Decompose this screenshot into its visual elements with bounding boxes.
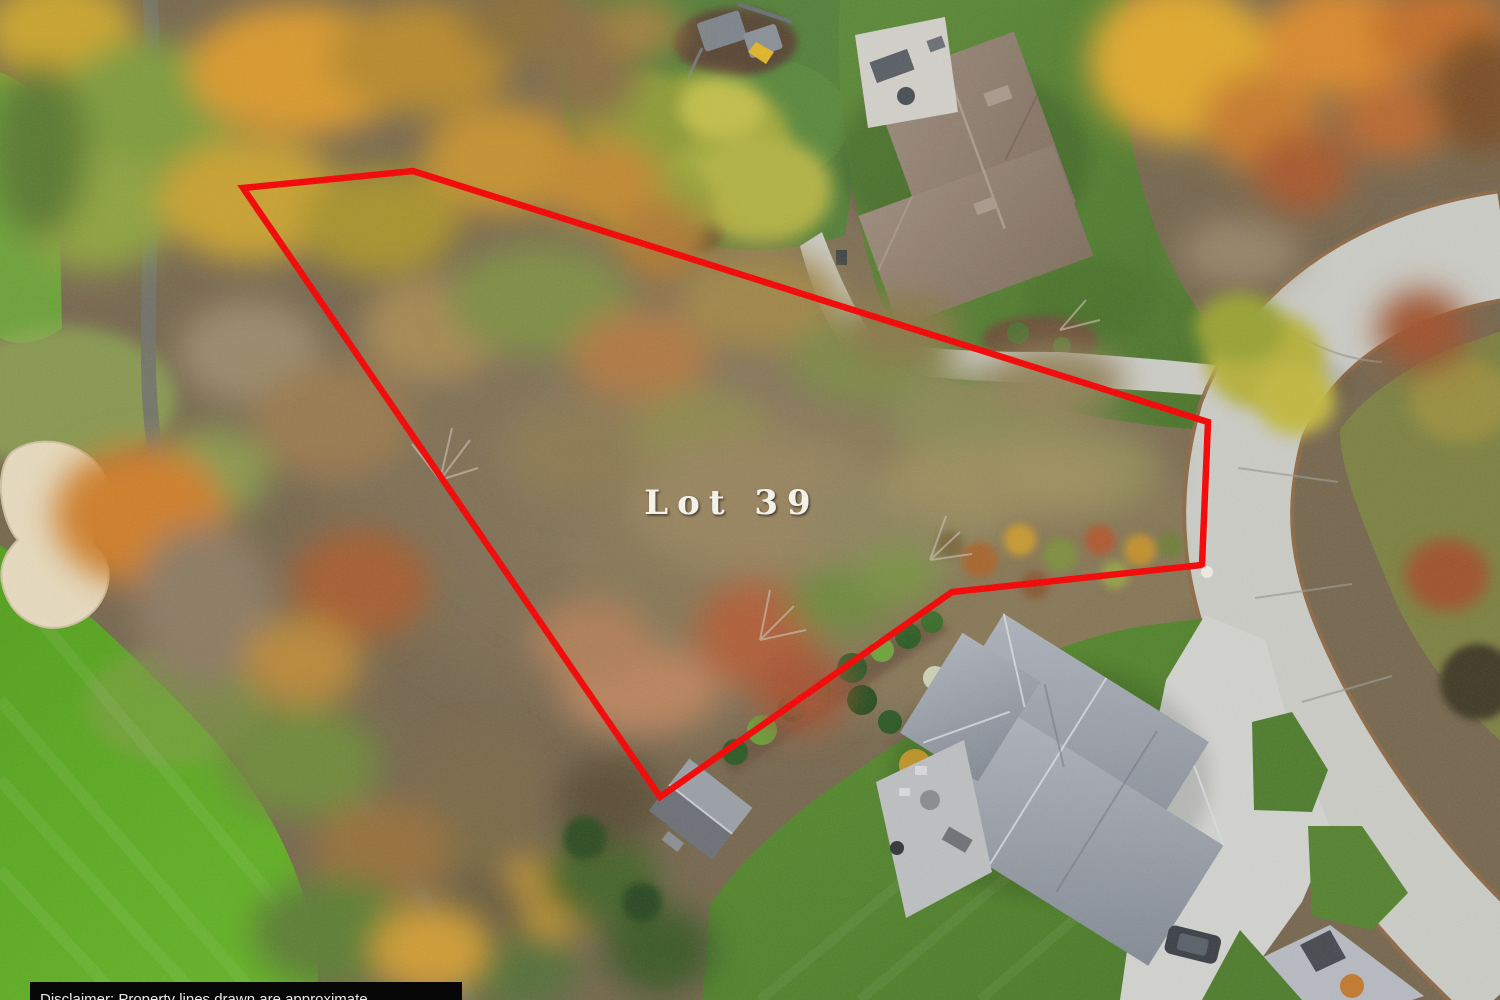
aerial-photo-canvas: Lot 39 Disclaimer: Property lines drawn … bbox=[0, 0, 1500, 1000]
photo-grain bbox=[0, 0, 1500, 1000]
disclaimer-text: Disclaimer: Property lines drawn are app… bbox=[40, 991, 368, 1000]
disclaimer-bar: Disclaimer: Property lines drawn are app… bbox=[30, 982, 462, 1000]
aerial-photo: Lot 39 Disclaimer: Property lines drawn … bbox=[0, 0, 1500, 1000]
